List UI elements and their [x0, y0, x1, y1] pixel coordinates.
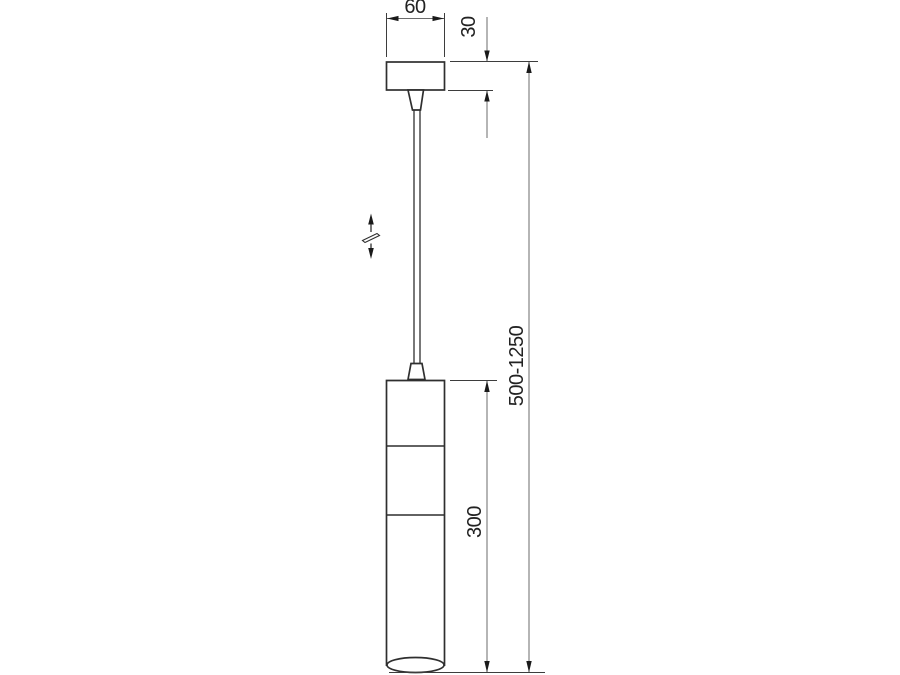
lamp-opening-rim [387, 658, 444, 673]
dim-label-overall-height: 500-1250 [506, 311, 528, 421]
pendant-lamp-dimension-drawing: 60 30 500-1250 300 [0, 0, 900, 675]
dim-label-canopy-height: 30 [459, 7, 479, 47]
adjust-down-arrowhead [368, 248, 374, 259]
height-adjust-symbol [363, 214, 380, 260]
dim-label-canopy-width: 60 [385, 0, 445, 18]
body-cable-connector [408, 364, 425, 380]
adjust-up-arrowhead [368, 214, 374, 225]
suspension-cable [414, 108, 420, 364]
line-art [0, 0, 900, 675]
dimension-canopy-width [387, 13, 445, 57]
dim-label-body-height: 300 [464, 492, 486, 552]
adjust-break-mark [363, 234, 380, 243]
canopy-cable-gland [408, 90, 424, 110]
ceiling-canopy [387, 62, 445, 90]
lamp-body [387, 381, 445, 667]
